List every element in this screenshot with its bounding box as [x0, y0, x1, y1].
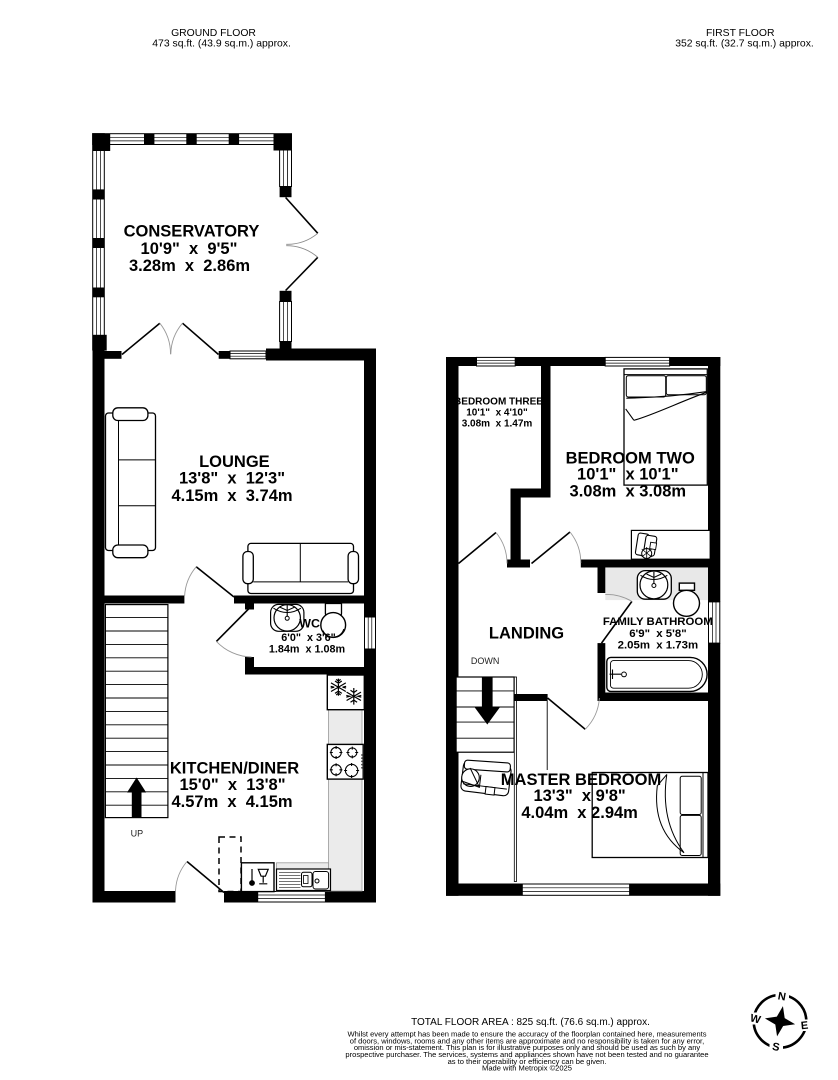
svg-text:BEDROOM THREE: BEDROOM THREE: [454, 396, 543, 407]
svg-text:2.05m x 1.73m: 2.05m x 1.73m: [618, 639, 698, 651]
svg-text:4.04m x 2.94m: 4.04m x 2.94m: [521, 804, 638, 822]
svg-text:10'9" x 9'5": 10'9" x 9'5": [141, 240, 238, 258]
svg-text:1.84m x 1.08m: 1.84m x 1.08m: [269, 643, 345, 655]
svg-text:473 sq.ft. (43.9 sq.m.) approx: 473 sq.ft. (43.9 sq.m.) approx.: [152, 39, 291, 50]
svg-text:15'0" x 13'8": 15'0" x 13'8": [179, 776, 285, 794]
svg-text:GROUND FLOOR: GROUND FLOOR: [171, 28, 256, 39]
svg-text:CONSERVATORY: CONSERVATORY: [124, 222, 260, 240]
svg-text:10'1" x 4'10": 10'1" x 4'10": [466, 408, 528, 419]
svg-text:TOTAL FLOOR AREA : 825 sq.ft.: TOTAL FLOOR AREA : 825 sq.ft. (76.6 sq.m…: [411, 1017, 650, 1028]
svg-text:352 sq.ft. (32.7 sq.m.) approx: 352 sq.ft. (32.7 sq.m.) approx.: [675, 39, 814, 50]
svg-text:3.08m x 1.47m: 3.08m x 1.47m: [462, 418, 533, 429]
svg-text:E: E: [800, 1020, 809, 1033]
svg-text:WC: WC: [299, 617, 320, 631]
svg-text:4.57m x 4.15m: 4.57m x 4.15m: [171, 793, 292, 811]
svg-text:6'0" x 3'6": 6'0" x 3'6": [281, 632, 335, 644]
svg-text:FAMILY BATHROOM: FAMILY BATHROOM: [603, 616, 713, 628]
svg-text:13'8" x 12'3": 13'8" x 12'3": [179, 470, 285, 488]
svg-text:3.28m x 2.86m: 3.28m x 2.86m: [129, 257, 250, 275]
svg-text:13'3" x 9'8": 13'3" x 9'8": [533, 787, 625, 805]
svg-text:LANDING: LANDING: [489, 625, 564, 643]
svg-text:10'1" x 10'1": 10'1" x 10'1": [577, 465, 678, 483]
svg-text:Made with Metropix ©2025: Made with Metropix ©2025: [482, 1064, 572, 1073]
svg-text:LOUNGE: LOUNGE: [199, 453, 270, 471]
svg-text:FIRST FLOOR: FIRST FLOOR: [706, 28, 775, 39]
svg-text:6'9" x 5'8": 6'9" x 5'8": [629, 628, 686, 640]
svg-text:3.08m x 3.08m: 3.08m x 3.08m: [570, 483, 687, 501]
svg-text:UP: UP: [131, 828, 144, 838]
svg-text:KITCHEN/DINER: KITCHEN/DINER: [170, 760, 299, 778]
svg-text:DOWN: DOWN: [471, 656, 500, 666]
svg-text:4.15m x 3.74m: 4.15m x 3.74m: [171, 487, 292, 505]
